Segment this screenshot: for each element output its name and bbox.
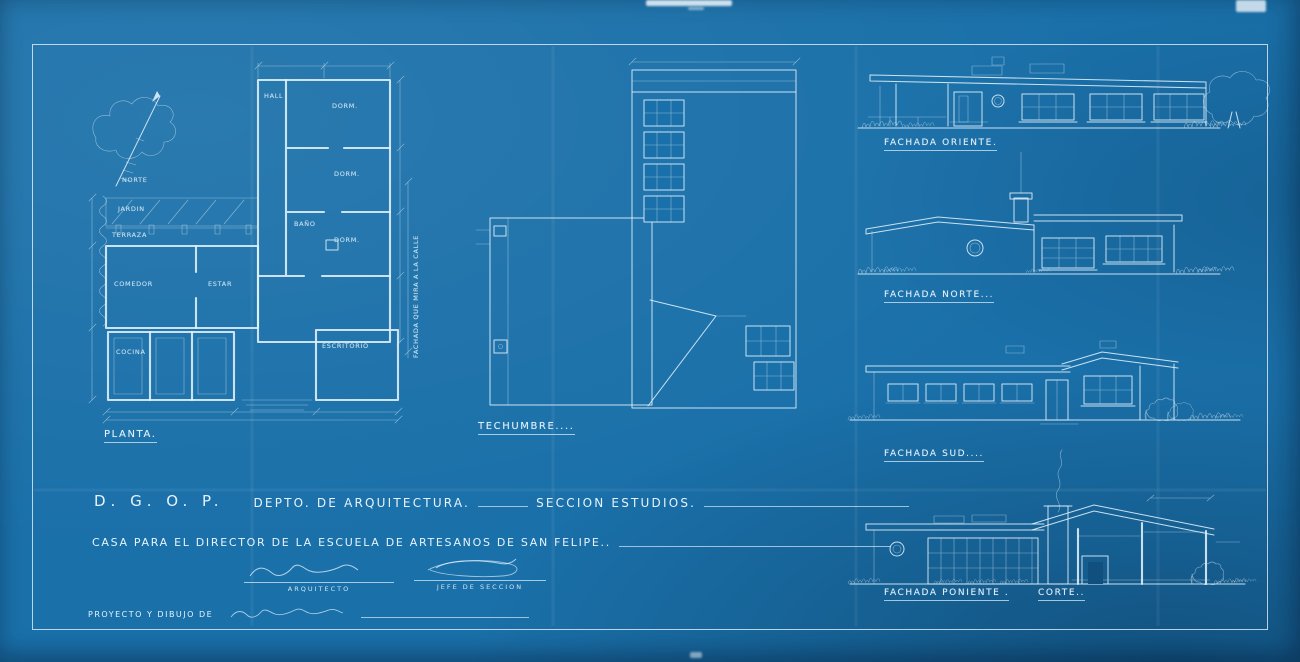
roof-plan-title: TECHUMBRE.... [478, 421, 575, 435]
room-label-cocina: COCINA [116, 348, 146, 356]
drawings-svg [0, 0, 1300, 662]
elevation-oriente-drawing [858, 57, 1270, 128]
signature-squiggle [244, 556, 394, 582]
scan-artifact [1236, 0, 1266, 12]
signature-line [414, 580, 546, 581]
room-label-estar: ESTAR [208, 280, 232, 288]
agency-name: D. G. O. P. [94, 492, 223, 510]
department-name: DEPTO. DE ARQUITECTURA. [253, 496, 470, 510]
elevation-norte-title: FACHADA NORTE... [884, 290, 994, 303]
signature-line [244, 582, 394, 583]
floor-plan-title: PLANTA. [104, 429, 157, 443]
signature-squiggle [414, 552, 546, 580]
room-label-hall: HALL [264, 92, 283, 100]
room-label-jardin: JARDIN [118, 205, 145, 213]
title-block-line2: CASA PARA EL DIRECTOR DE LA ESCUELA DE A… [92, 536, 891, 549]
credit-signature-squiggle [227, 604, 357, 622]
roof-plan-drawing [476, 58, 800, 408]
elevation-poniente-title: FACHADA PONIENTE . [884, 588, 1009, 601]
section-title: CORTE.. [1038, 588, 1085, 601]
section-name: SECCION ESTUDIOS. [536, 496, 696, 510]
elevation-norte-drawing [858, 152, 1234, 274]
scan-artifact [690, 652, 702, 658]
room-label-dorm-1: DORM. [332, 102, 358, 110]
scan-artifact [688, 7, 704, 10]
project-title: CASA PARA EL DIRECTOR DE LA ESCUELA DE A… [92, 536, 611, 549]
room-label-dorm-2: DORM. [334, 170, 360, 178]
room-label-dorm-3: DORM. [334, 236, 360, 244]
room-label-terraza: TERRAZA [112, 231, 147, 239]
title-block-line1: D. G. O. P. DEPTO. DE ARQUITECTURA. SECC… [94, 492, 909, 510]
credit-text: PROYECTO Y DIBUJO DE [88, 610, 213, 619]
room-label-comedor: COMEDOR [114, 280, 153, 288]
elevation-poniente-corte-drawing [848, 450, 1256, 585]
architect-signature: ARQUITECTO [244, 556, 394, 593]
chief-label: JEFE DE SECCION [414, 583, 546, 591]
north-arrow [93, 91, 176, 186]
rule-line [619, 545, 891, 547]
blueprint-sheet: NORTE PLANTA. FACHADA QUE MIRA A LA CALL… [0, 0, 1300, 662]
rule-line [361, 616, 529, 618]
elevation-oriente-title: FACHADA ORIENTE. [884, 138, 997, 151]
credit-line: PROYECTO Y DIBUJO DE [88, 604, 529, 622]
room-label-escritorio: ESCRITORIO [322, 342, 369, 350]
elevation-sud-drawing [848, 341, 1243, 424]
scan-artifact [646, 0, 732, 6]
architect-label: ARQUITECTO [244, 585, 394, 593]
section-chief-signature: JEFE DE SECCION [414, 552, 546, 591]
street-facade-note: FACHADA QUE MIRA A LA CALLE [412, 235, 420, 358]
rule-line [478, 505, 528, 507]
room-label-bano: BAÑO [294, 220, 316, 228]
rule-line [704, 505, 909, 507]
elevation-sud-title: FACHADA SUD.... [884, 449, 984, 462]
north-label: NORTE [122, 176, 148, 184]
